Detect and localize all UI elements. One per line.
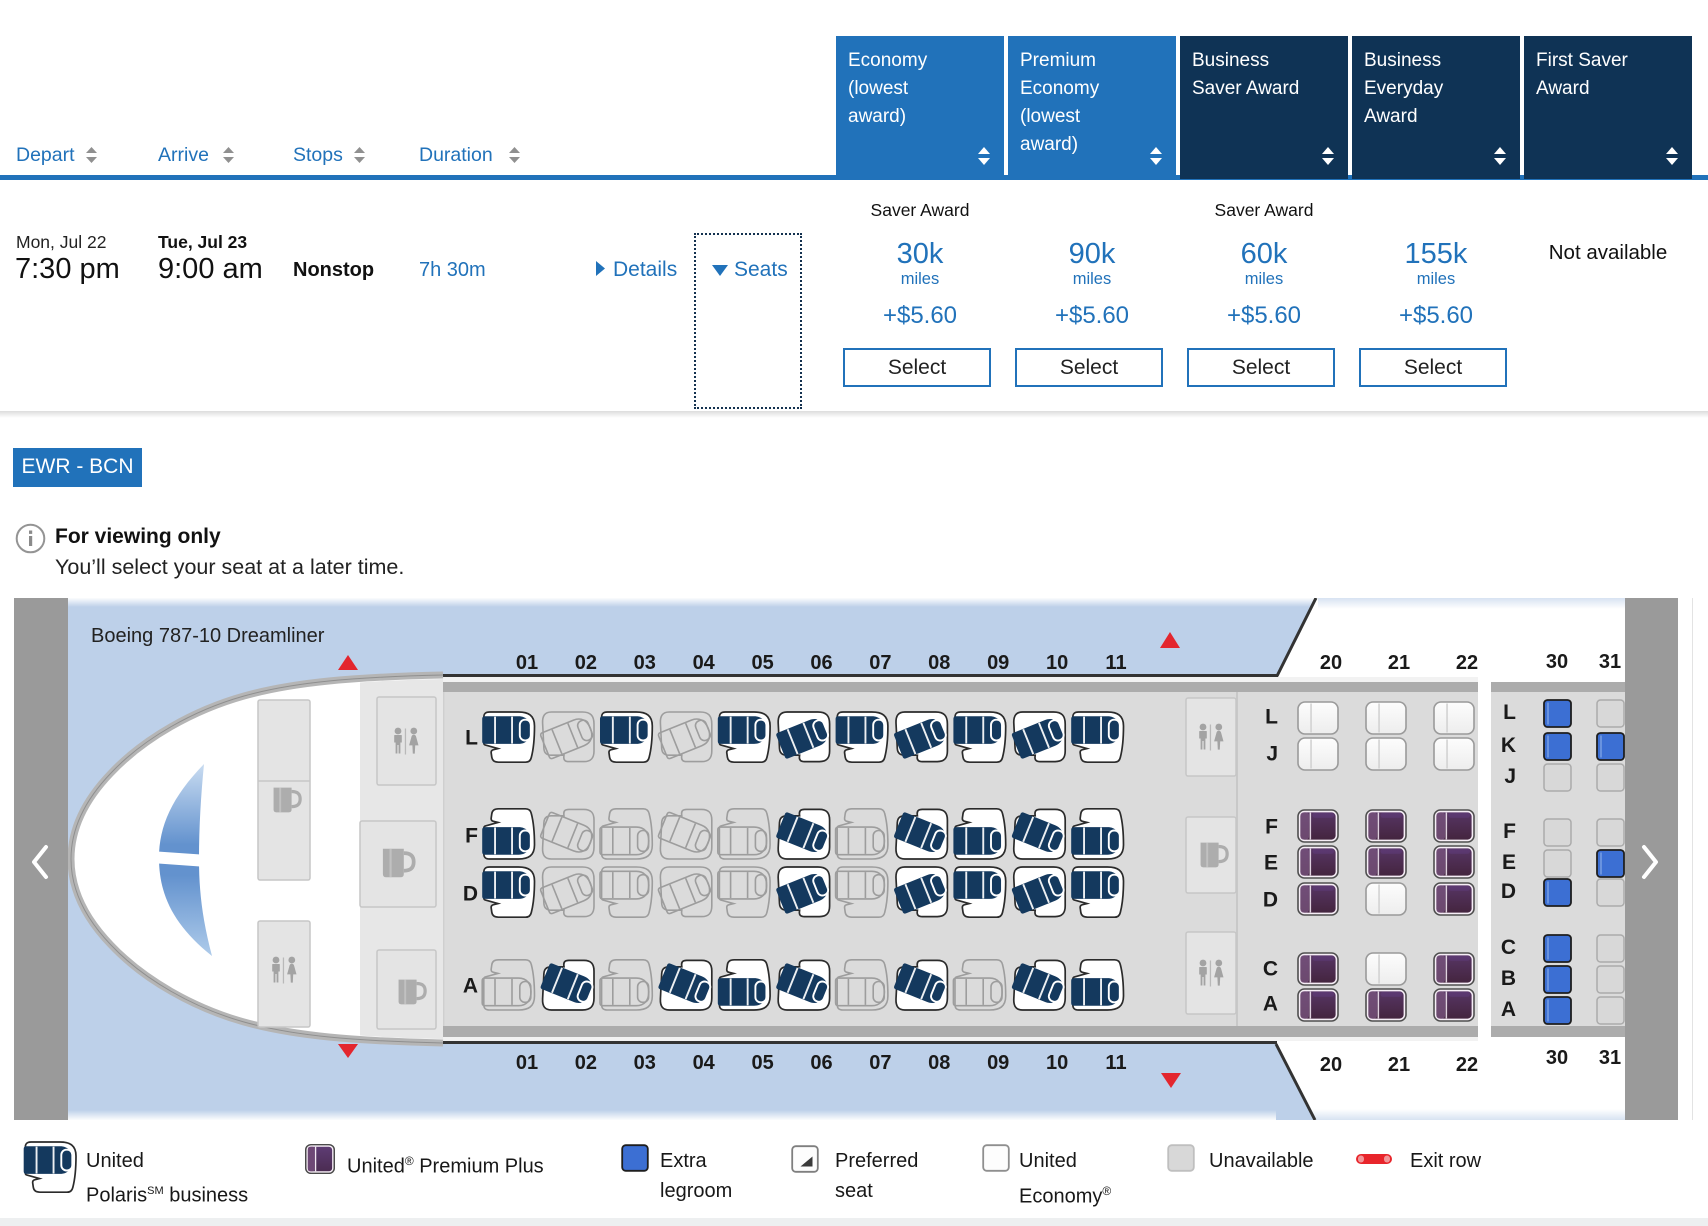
svg-text:D: D [1263, 889, 1278, 912]
svg-text:E: E [1502, 851, 1516, 874]
svg-text:L: L [1265, 706, 1278, 729]
svg-text:A: A [1501, 998, 1516, 1021]
svg-text:30: 30 [1546, 1047, 1568, 1069]
svg-text:C: C [1501, 936, 1516, 959]
svg-text:20: 20 [1320, 652, 1342, 674]
svg-text:D: D [463, 883, 478, 906]
svg-text:08: 08 [928, 1052, 950, 1074]
svg-text:06: 06 [810, 1052, 832, 1074]
svg-text:09: 09 [987, 1052, 1009, 1074]
svg-text:31: 31 [1599, 1047, 1621, 1069]
svg-text:A: A [463, 975, 478, 998]
svg-text:06: 06 [810, 652, 832, 674]
svg-text:B: B [1501, 967, 1516, 990]
svg-text:J: J [1266, 743, 1278, 766]
svg-text:F: F [1503, 820, 1516, 843]
svg-text:02: 02 [575, 1052, 597, 1074]
svg-text:11: 11 [1105, 1052, 1126, 1074]
svg-text:F: F [465, 825, 478, 848]
svg-text:10: 10 [1046, 652, 1068, 674]
svg-text:F: F [1265, 816, 1278, 839]
svg-text:03: 03 [634, 1052, 656, 1074]
svg-text:21: 21 [1388, 1054, 1410, 1076]
svg-text:11: 11 [1105, 652, 1126, 674]
svg-text:08: 08 [928, 652, 950, 674]
svg-text:07: 07 [869, 1052, 891, 1074]
svg-text:01: 01 [516, 1052, 538, 1074]
svg-text:L: L [465, 727, 478, 750]
svg-text:01: 01 [516, 652, 538, 674]
svg-text:04: 04 [693, 1052, 716, 1074]
svg-text:30: 30 [1546, 651, 1568, 673]
svg-text:02: 02 [575, 652, 597, 674]
svg-text:Boeing 787-10 Dreamliner: Boeing 787-10 Dreamliner [91, 625, 325, 647]
svg-text:20: 20 [1320, 1054, 1342, 1076]
svg-text:L: L [1503, 701, 1516, 724]
svg-text:07: 07 [869, 652, 891, 674]
svg-text:05: 05 [751, 1052, 773, 1074]
svg-text:J: J [1504, 765, 1516, 788]
svg-text:05: 05 [751, 652, 773, 674]
svg-text:22: 22 [1456, 652, 1478, 674]
svg-text:09: 09 [987, 652, 1009, 674]
svg-text:K: K [1501, 734, 1516, 757]
svg-text:22: 22 [1456, 1054, 1478, 1076]
svg-text:C: C [1263, 958, 1278, 981]
svg-text:31: 31 [1599, 651, 1621, 673]
svg-text:21: 21 [1388, 652, 1410, 674]
svg-text:04: 04 [693, 652, 716, 674]
svg-text:A: A [1263, 993, 1278, 1016]
svg-text:D: D [1501, 880, 1516, 903]
svg-text:E: E [1264, 852, 1278, 875]
svg-text:10: 10 [1046, 1052, 1068, 1074]
svg-text:03: 03 [634, 652, 656, 674]
